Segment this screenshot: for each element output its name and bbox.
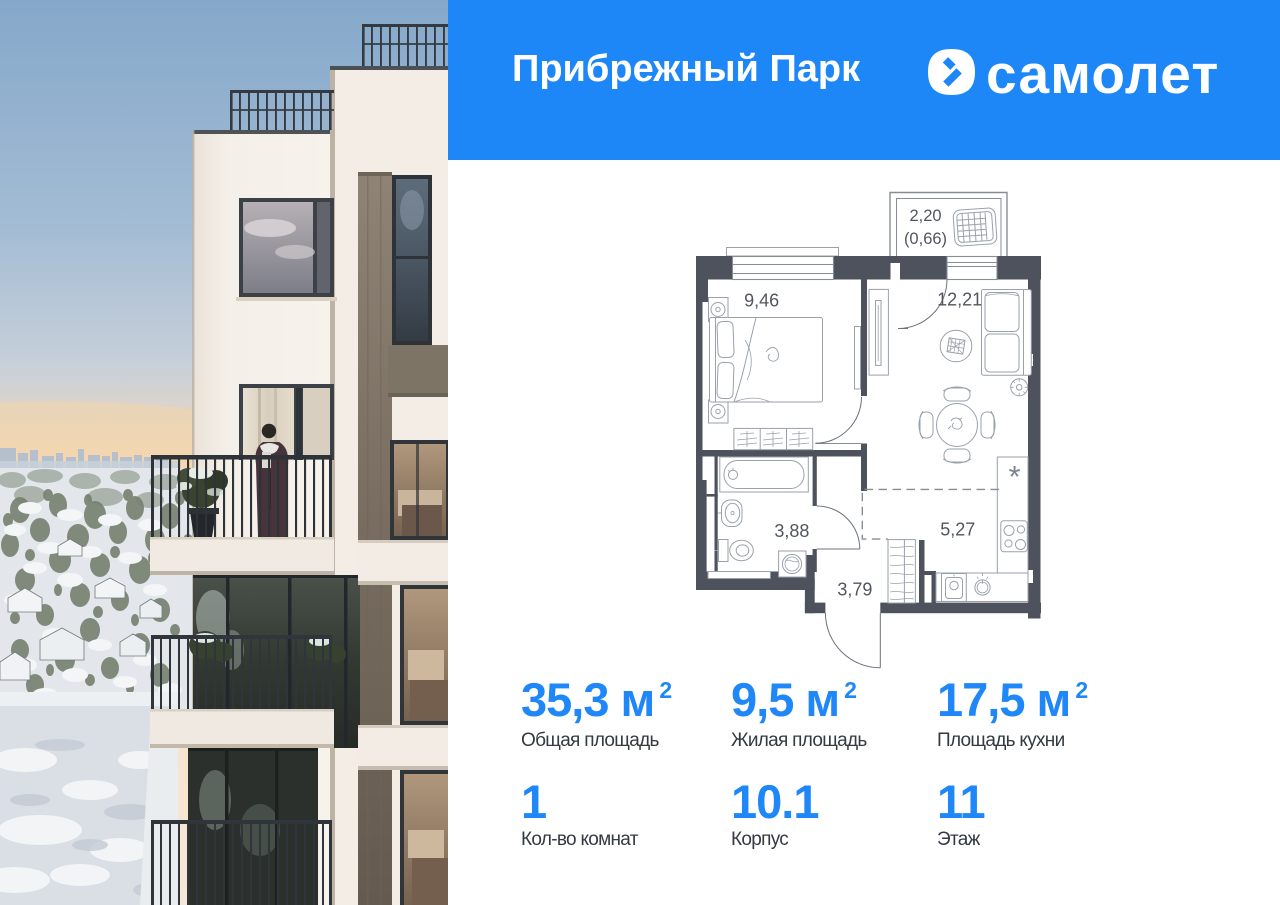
svg-text:9,46: 9,46 xyxy=(744,291,779,311)
svg-text:5,27: 5,27 xyxy=(940,520,975,540)
svg-text:3,88: 3,88 xyxy=(774,521,809,541)
svg-text:(0,66): (0,66) xyxy=(904,230,947,248)
svg-text:3,79: 3,79 xyxy=(837,580,872,600)
svg-text:*: * xyxy=(1008,459,1020,494)
svg-text:2,20: 2,20 xyxy=(909,207,941,225)
svg-text:12,21: 12,21 xyxy=(937,290,982,310)
